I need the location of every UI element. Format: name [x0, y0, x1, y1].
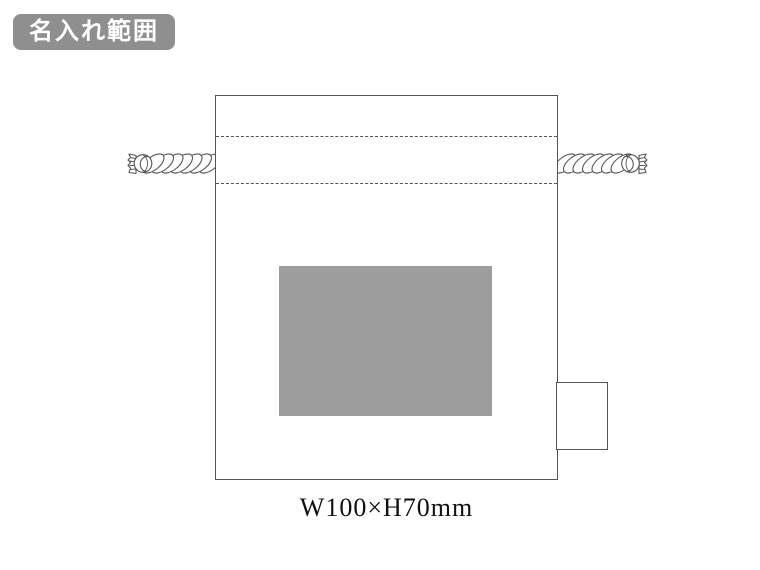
drawstring-rope-left-icon	[126, 148, 216, 178]
print-area-diagram: 名入れ範囲	[0, 0, 760, 570]
brand-tag	[556, 382, 608, 450]
print-area-badge: 名入れ範囲	[13, 14, 175, 50]
drawstring-channel-line-top	[216, 136, 557, 137]
pouch-outline	[215, 95, 558, 480]
print-area-size-label: W100×H70mm	[215, 493, 558, 523]
print-area-rect	[279, 266, 492, 416]
drawstring-channel-line-bottom	[216, 183, 557, 184]
drawstring-rope-right-icon	[557, 148, 649, 178]
